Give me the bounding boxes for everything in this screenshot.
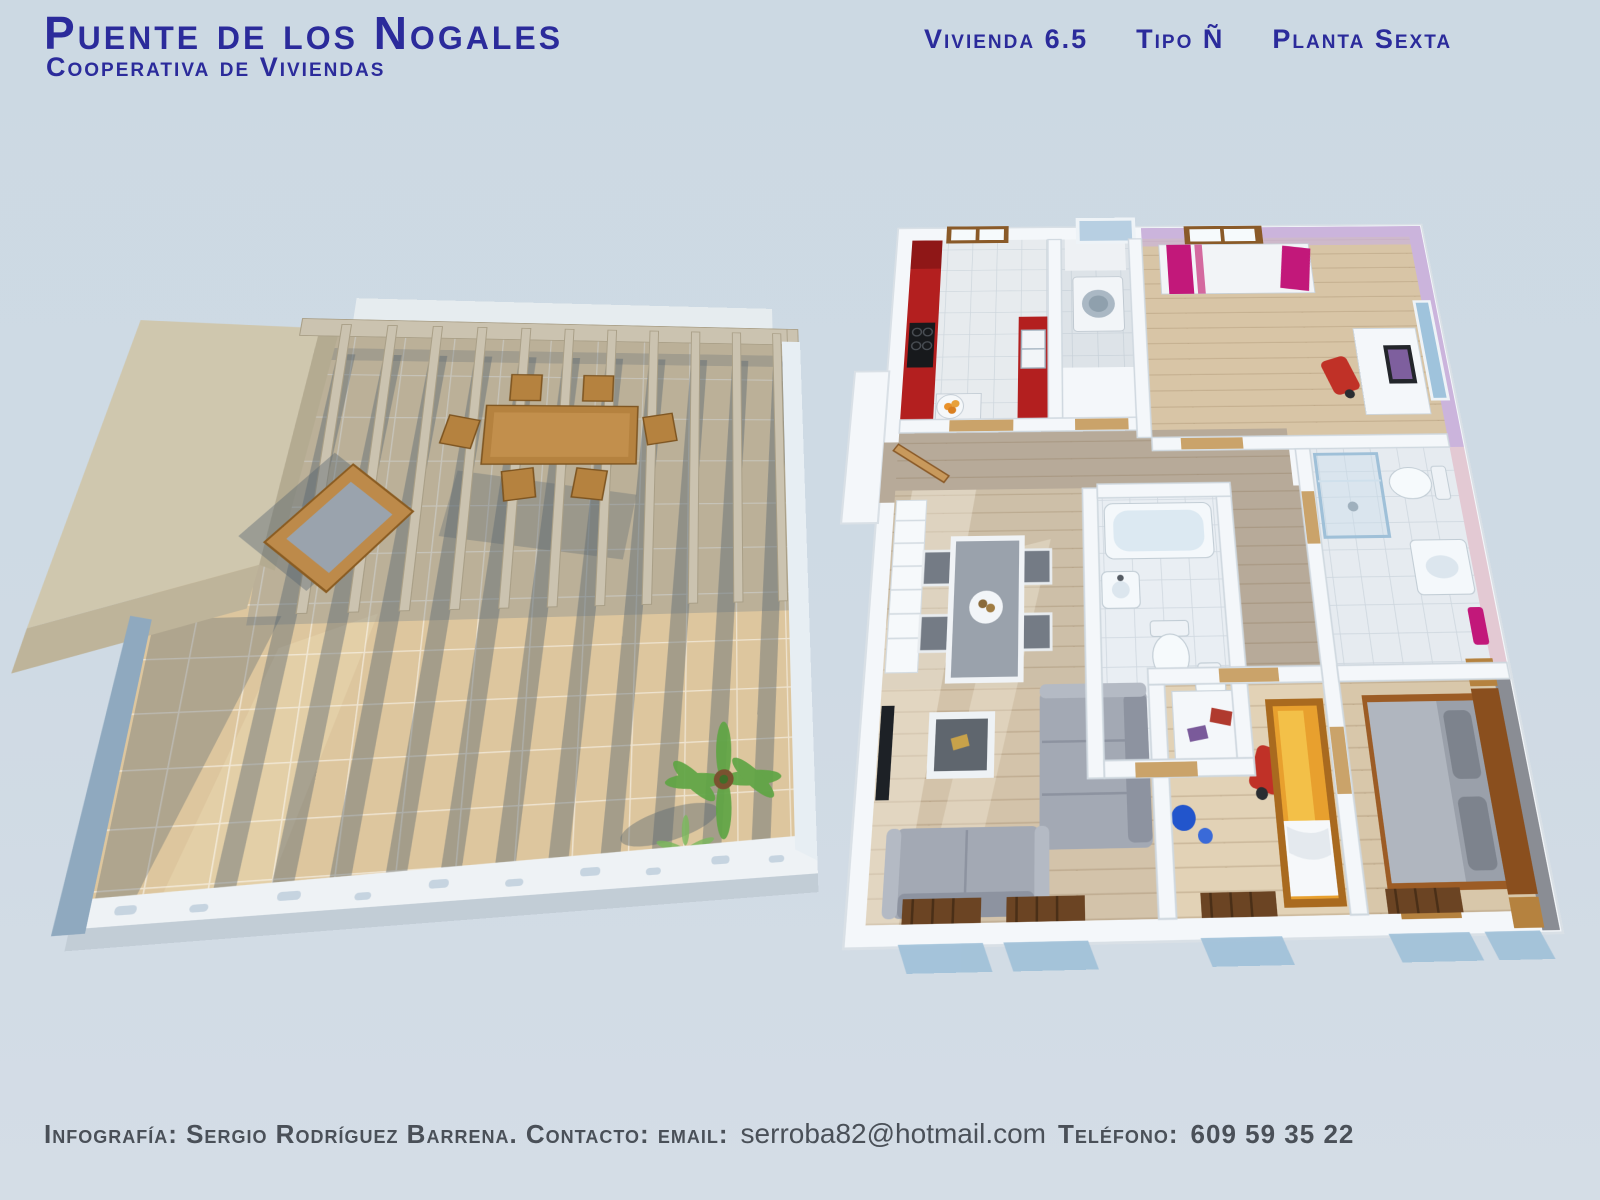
unit-planta: Planta Sexta [1272, 24, 1452, 55]
terrace-svg [68, 330, 818, 935]
bathtub [1104, 502, 1215, 559]
coffee-table [926, 711, 995, 779]
contact-email: serroba82@hotmail.com [741, 1118, 1046, 1150]
unit-tipo: Tipo Ñ [1136, 24, 1224, 55]
infographic-canvas: Puente de los Nogales Cooperativa de Viv… [0, 0, 1600, 1200]
dining-table [945, 535, 1025, 683]
unit-vivienda: Vivienda 6.5 [924, 24, 1088, 55]
bedroom1-skylight [1184, 226, 1264, 245]
credit-text: Infografía: Sergio Rodríguez Barrena. Co… [44, 1119, 729, 1150]
page-title: Puente de los Nogales [44, 10, 563, 56]
apartment-plan [846, 226, 1560, 946]
phone-number: 609 59 35 22 [1191, 1119, 1355, 1150]
phone-label: Teléfono: [1058, 1119, 1179, 1150]
page-subtitle: Cooperativa de Viviendas [46, 54, 385, 81]
unit-info: Vivienda 6.5 Tipo Ñ Planta Sexta [924, 24, 1544, 55]
shower [1315, 454, 1390, 538]
lightwell-glazing [1078, 219, 1135, 242]
kitchen-window [946, 226, 1009, 243]
sink2 [1409, 539, 1475, 595]
nightstand2 [1509, 897, 1545, 928]
bedroom1-bed [1159, 244, 1317, 294]
apartment-svg [846, 226, 1560, 946]
footer-credit-line: Infografía: Sergio Rodríguez Barrena. Co… [44, 1118, 1354, 1150]
terrace-plan [68, 330, 818, 935]
bath-sink [1102, 571, 1141, 608]
